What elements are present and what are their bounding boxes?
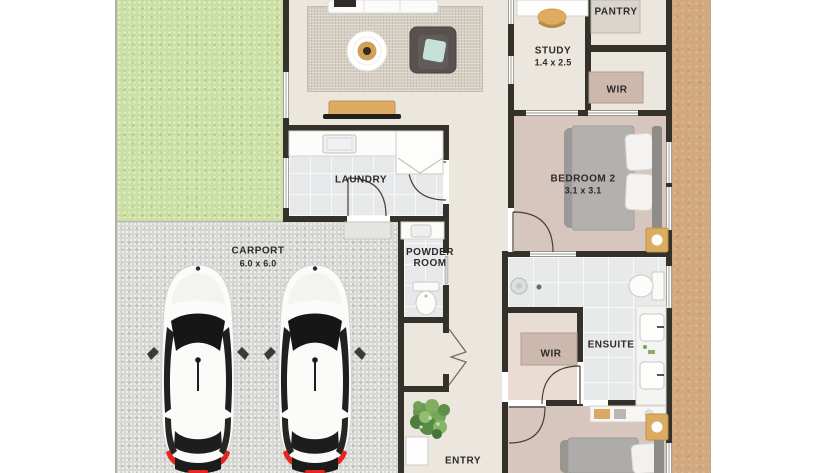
room-dims-bedroom2: 3.1 x 3.1 xyxy=(565,186,602,197)
room-label-wir-upper: WIR xyxy=(607,85,628,96)
lawn-area xyxy=(117,0,283,221)
floor-plan: PANTRY STUDY 1.4 x 2.5 WIR BEDROOM 2 3.1… xyxy=(0,0,840,473)
room-label-study: STUDY xyxy=(535,46,571,57)
room-label-ensuite: ENSUITE xyxy=(588,340,635,351)
powder-line2: ROOM xyxy=(413,258,446,269)
wir-ensuite-floor xyxy=(508,313,577,406)
room-label-wir-ensuite: WIR xyxy=(541,349,562,360)
powder-room-floor xyxy=(404,222,443,317)
room-label-powder-room: POWDERROOM xyxy=(406,247,454,269)
room-dims-carport: 6.0 x 6.0 xyxy=(240,259,277,270)
room-label-carport: CARPORT xyxy=(232,246,285,257)
room-label-entry: ENTRY xyxy=(445,456,481,467)
laundry-floor xyxy=(289,131,443,216)
powder-line1: POWDER xyxy=(406,247,454,258)
room-label-laundry: LAUNDRY xyxy=(335,175,387,186)
room-label-pantry: PANTRY xyxy=(595,7,638,18)
room-label-bedroom2: BEDROOM 2 xyxy=(550,174,615,185)
master-bedroom-carpet xyxy=(508,406,666,473)
room-dims-study: 1.4 x 2.5 xyxy=(535,58,572,69)
living-rug xyxy=(307,6,483,92)
side-path xyxy=(672,0,711,473)
